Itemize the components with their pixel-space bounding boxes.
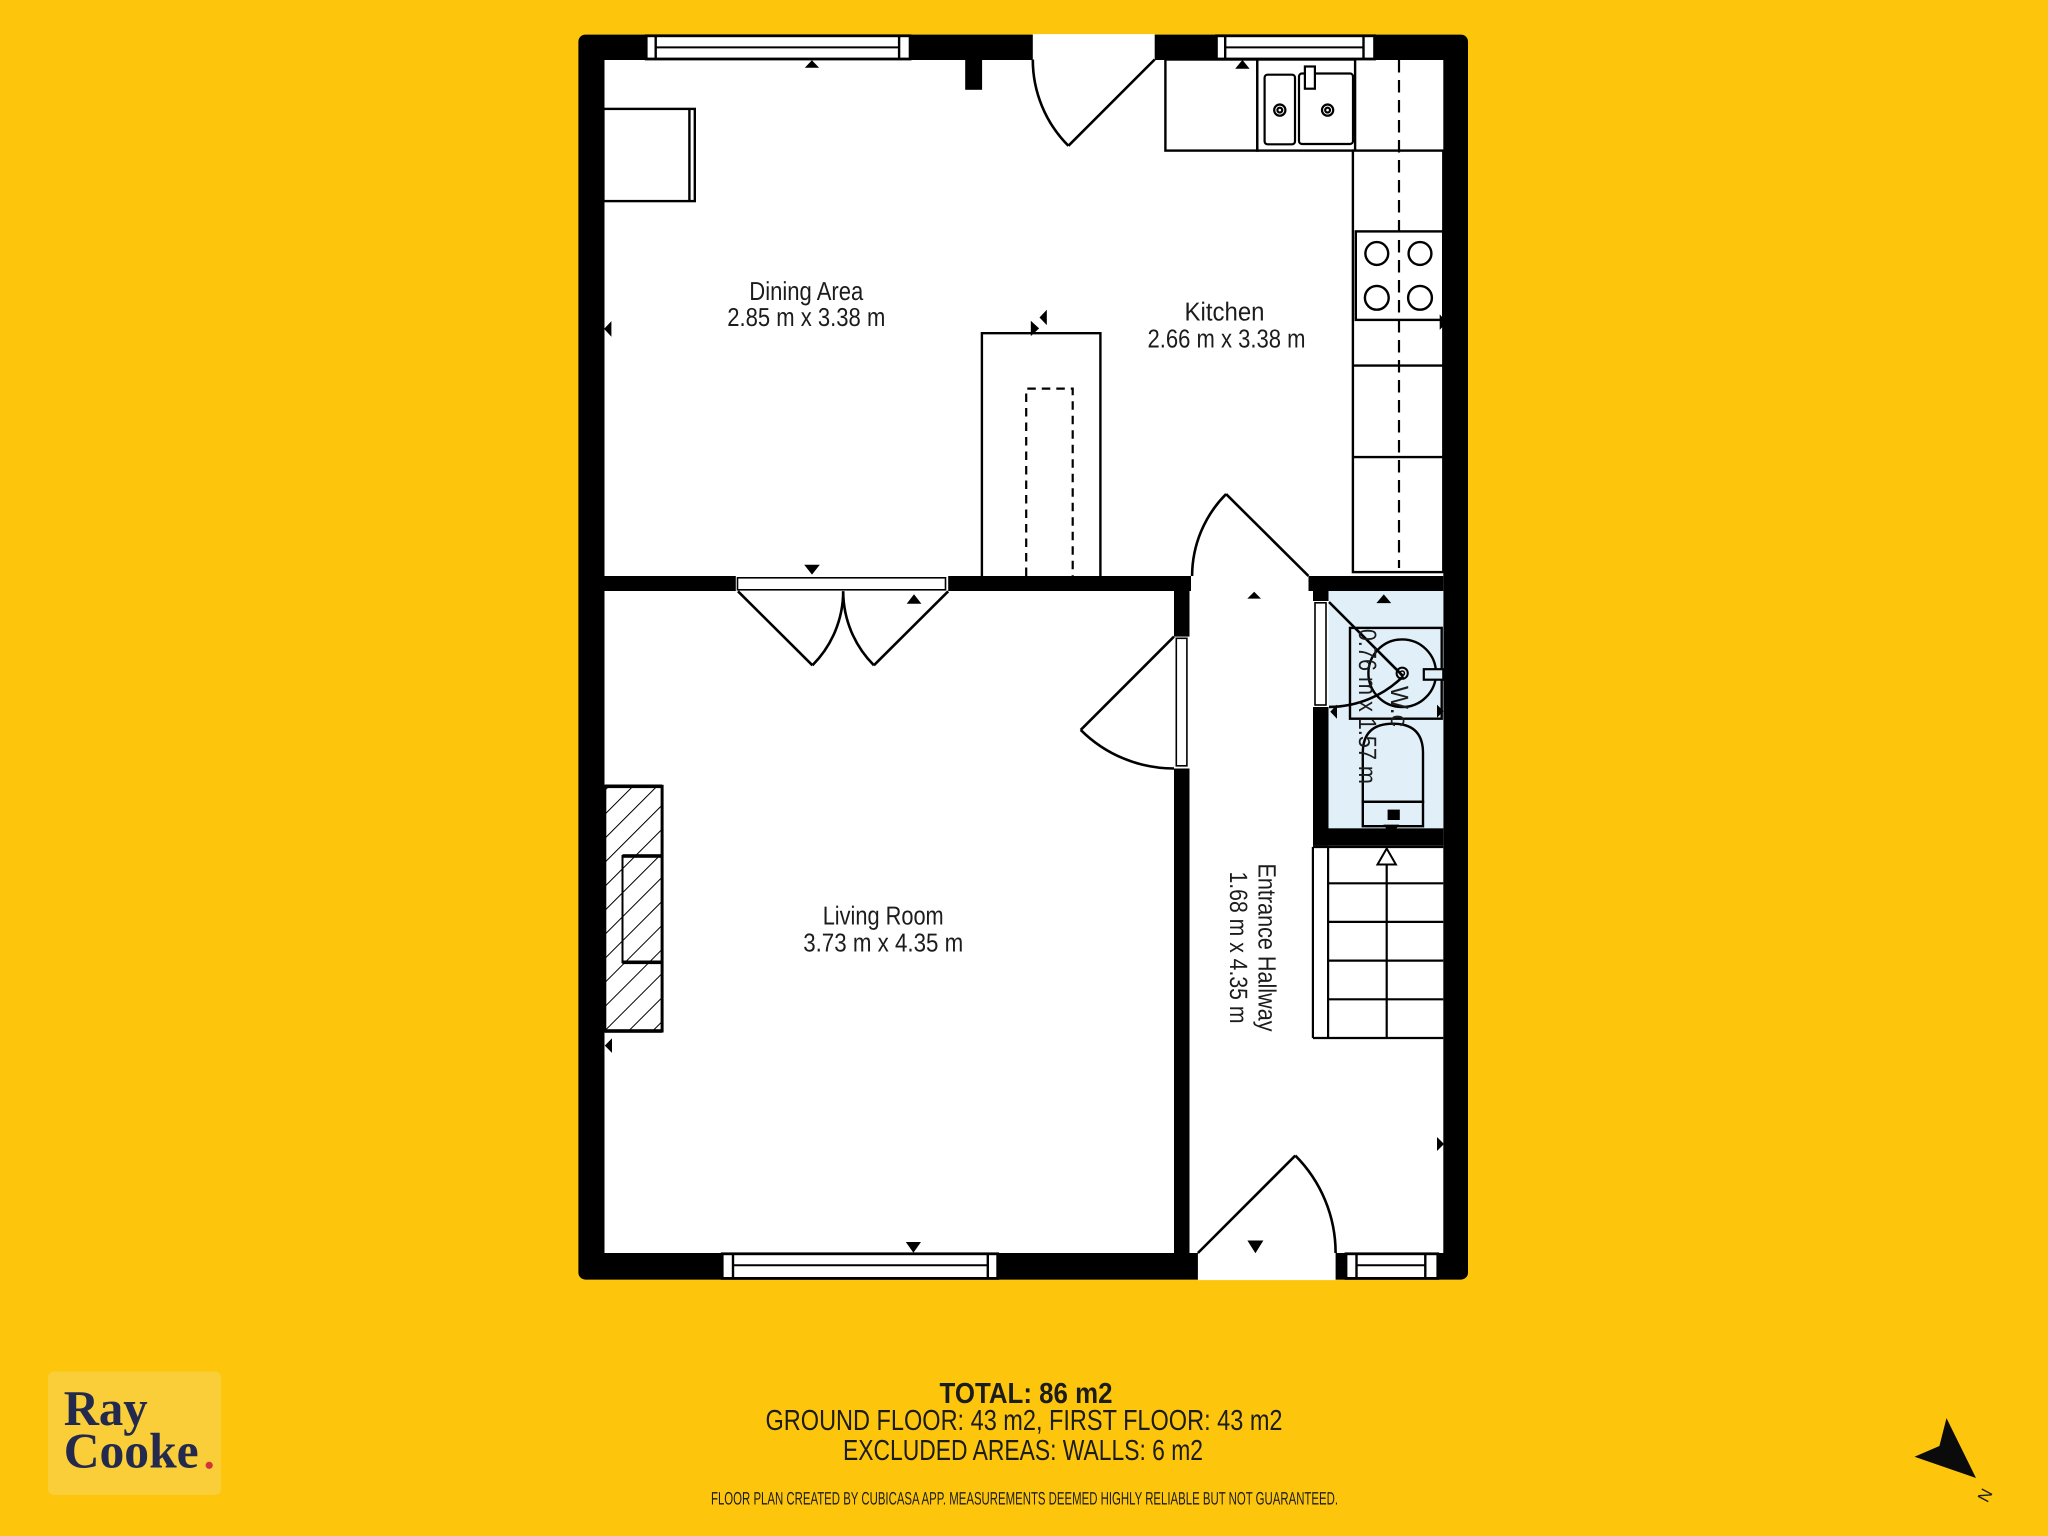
svg-text:2.66 m x 3.38 m: 2.66 m x 3.38 m <box>1148 324 1306 354</box>
svg-text:Entrance Hallway: Entrance Hallway <box>1252 864 1280 1032</box>
svg-text:Living Room: Living Room <box>823 900 944 930</box>
svg-text:FLOOR PLAN CREATED BY CUBICASA: FLOOR PLAN CREATED BY CUBICASA APP. MEAS… <box>711 1489 1338 1509</box>
svg-text:Cooke: Cooke <box>64 1423 199 1479</box>
svg-text:0.76 m x 1.57 m: 0.76 m x 1.57 m <box>1353 629 1381 784</box>
svg-text:3.73 m x 4.35 m: 3.73 m x 4.35 m <box>803 927 963 957</box>
svg-text:EXCLUDED AREAS: WALLS: 6 m2: EXCLUDED AREAS: WALLS: 6 m2 <box>843 1435 1203 1467</box>
svg-text:GROUND FLOOR: 43 m2, FIRST FLO: GROUND FLOOR: 43 m2, FIRST FLOOR: 43 m2 <box>766 1405 1283 1437</box>
svg-text:W.c: W.c <box>1385 686 1413 727</box>
svg-text:Kitchen: Kitchen <box>1185 297 1265 327</box>
svg-text:2.85 m x 3.38 m: 2.85 m x 3.38 m <box>727 302 885 332</box>
svg-text:1.68 m x 4.35 m: 1.68 m x 4.35 m <box>1224 872 1252 1024</box>
